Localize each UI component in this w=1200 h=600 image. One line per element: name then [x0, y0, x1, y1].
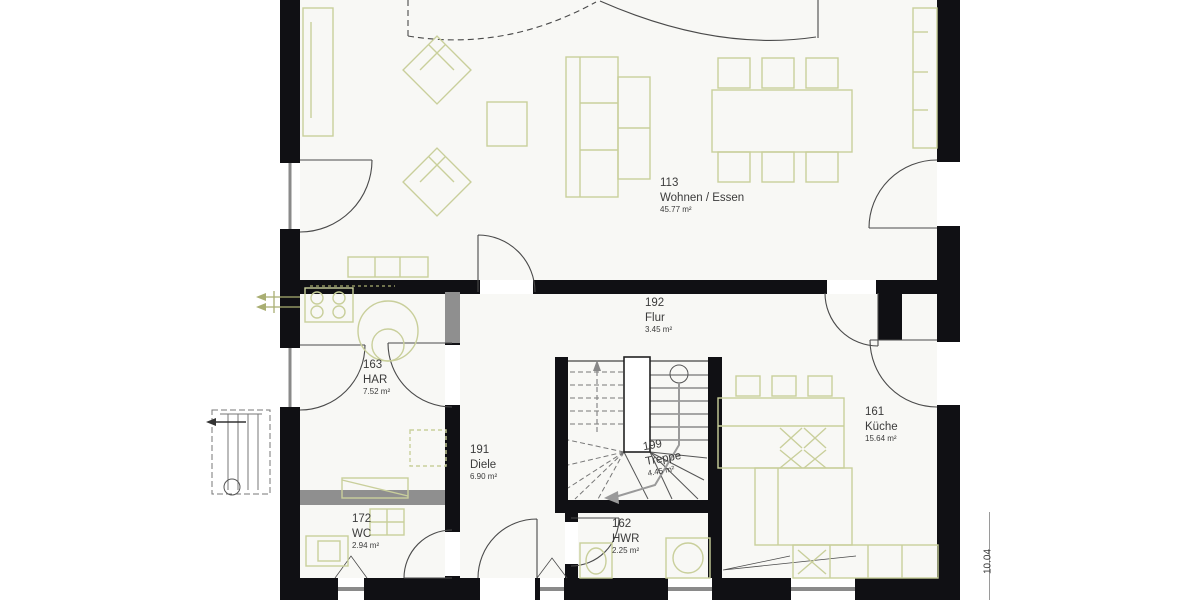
- room-number: 161: [865, 405, 898, 420]
- armchair-2: [403, 148, 471, 216]
- staircase: [568, 357, 708, 504]
- hob-burners: [780, 428, 826, 468]
- dining-set: [712, 58, 852, 182]
- door-har-left: [300, 345, 365, 410]
- armchair-1: [403, 36, 471, 104]
- room-name: Diele: [470, 458, 497, 473]
- room-area: 7.52 m²: [363, 387, 390, 397]
- coffee-table: [487, 102, 527, 146]
- kitchen-counter-bottom: [793, 545, 938, 578]
- supply-connections: [256, 286, 395, 313]
- room-name: WC: [352, 527, 379, 542]
- stair-up-arrow-icon: [593, 360, 601, 371]
- sofa: [566, 57, 650, 197]
- door-living: [478, 235, 535, 292]
- door-terrace-left: [300, 160, 372, 232]
- washing-machine-2: [666, 538, 710, 578]
- room-number: 172: [352, 512, 379, 527]
- entrance-arrow-icon: [206, 418, 216, 426]
- door-top-solid: [600, 0, 818, 40]
- room-area: 2.25 m²: [612, 546, 639, 556]
- door-entrance: [478, 519, 537, 578]
- room-area: 3.45 m²: [645, 325, 672, 335]
- window-sash-kitchen: [723, 556, 856, 570]
- room-name: Küche: [865, 420, 898, 435]
- room-number: 162: [612, 517, 639, 532]
- heat-pump: [305, 288, 353, 322]
- room-label-flur: 192 Flur 3.45 m²: [645, 296, 672, 336]
- stair-upper-flight: [568, 372, 624, 499]
- room-label-wohnen-essen: 113 Wohnen / Essen 45.77 m²: [660, 176, 744, 216]
- furniture-kitchen: [718, 376, 938, 578]
- room-name: Flur: [645, 311, 672, 326]
- room-area: 15.64 m²: [865, 434, 898, 444]
- stair-walk-arrow-icon: [604, 491, 619, 504]
- room-area: 45.77 m²: [660, 205, 744, 215]
- supply-arrow-icon-2: [256, 303, 266, 311]
- stair-spine-wall: [624, 357, 650, 452]
- washing-machine-1: [580, 543, 612, 578]
- floor-plan: 113 Wohnen / Essen 45.77 m² 192 Flur 3.4…: [0, 0, 1200, 600]
- plan-linework: [0, 0, 1200, 600]
- door-terrace-right: [869, 160, 937, 228]
- sideboard-right: [913, 8, 937, 148]
- room-number: 163: [363, 358, 390, 373]
- room-label-diele: 191 Diele 6.90 m²: [470, 443, 497, 483]
- furniture-living: [303, 8, 937, 277]
- window-swing-sidelight: [537, 558, 567, 578]
- room-area: 2.94 m²: [352, 541, 379, 551]
- lowboard: [348, 257, 428, 277]
- room-label-wc: 172 WC 2.94 m²: [352, 512, 379, 552]
- room-name: HWR: [612, 532, 639, 547]
- room-area: 6.90 m²: [470, 472, 497, 482]
- wc-toilet: [306, 536, 348, 566]
- door-wc: [404, 530, 452, 578]
- room-number: 191: [470, 443, 497, 458]
- door-kitchen-right: [870, 340, 937, 407]
- kitchen-island: [718, 398, 844, 468]
- bar-stool-2: [772, 376, 796, 396]
- door-diele-har: [388, 343, 452, 407]
- bar-stool-3: [808, 376, 832, 396]
- room-label-kueche: 161 Küche 15.64 m²: [865, 405, 898, 445]
- bar-stool-1: [736, 376, 760, 396]
- room-name: HAR: [363, 373, 390, 388]
- entrance-stoop: [206, 410, 270, 495]
- shelf-left: [303, 8, 333, 136]
- supply-arrow-icon-1: [256, 293, 266, 301]
- bench: [342, 478, 408, 498]
- room-number: 192: [645, 296, 672, 311]
- room-name: Wohnen / Essen: [660, 191, 744, 206]
- room-label-treppe: 199 Treppe 4.45 m²: [642, 434, 684, 479]
- kitchen-counter-side: [755, 468, 852, 545]
- door-flur-kitchen: [825, 293, 878, 346]
- room-label-hwr: 162 HWR 2.25 m²: [612, 517, 639, 557]
- boiler-tank: [358, 301, 418, 361]
- reserved-area-dashed: [410, 430, 446, 466]
- door-top-dashed: [408, 0, 596, 40]
- dimension-label: 10.04: [983, 532, 994, 592]
- stair-start-marker: [670, 365, 688, 383]
- room-number: 113: [660, 176, 744, 191]
- room-label-har: 163 HAR 7.52 m²: [363, 358, 390, 398]
